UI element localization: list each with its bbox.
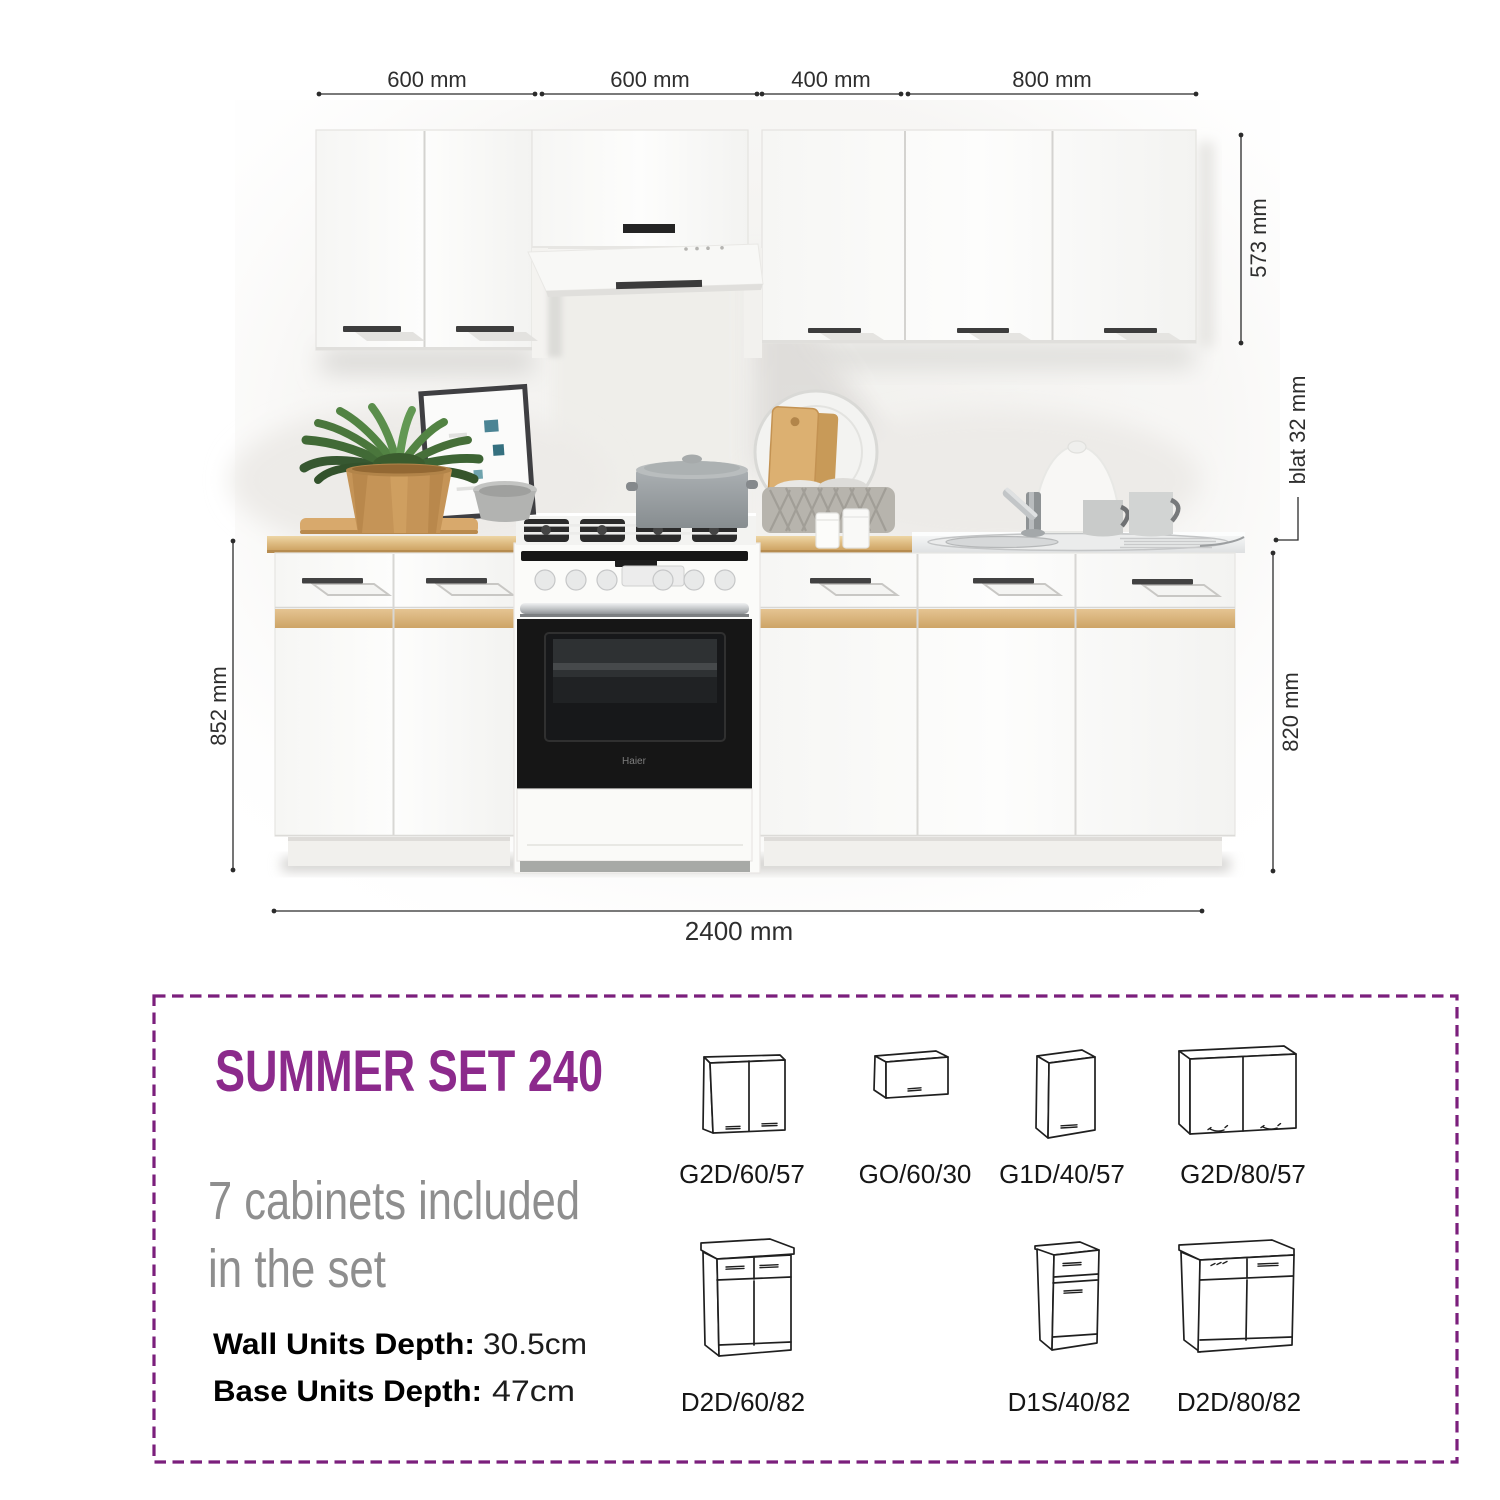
svg-text:2400 mm: 2400 mm xyxy=(685,916,793,946)
svg-text:D2D/80/82: D2D/80/82 xyxy=(1177,1387,1301,1417)
svg-text:7 cabinets included: 7 cabinets included xyxy=(208,1171,580,1231)
svg-text:800 mm: 800 mm xyxy=(1012,67,1091,92)
svg-text:30.5cm: 30.5cm xyxy=(483,1328,587,1361)
svg-text:600 mm: 600 mm xyxy=(610,67,689,92)
svg-text:47cm: 47cm xyxy=(492,1375,575,1408)
svg-text:Base Units Depth:: Base Units Depth: xyxy=(213,1375,482,1408)
svg-text:in the set: in the set xyxy=(208,1239,386,1299)
svg-text:600 mm: 600 mm xyxy=(387,67,466,92)
svg-text:D2D/60/82: D2D/60/82 xyxy=(681,1387,805,1417)
svg-text:820 mm: 820 mm xyxy=(1278,672,1303,751)
svg-text:SUMMER SET 240: SUMMER SET 240 xyxy=(215,1039,603,1104)
svg-text:852 mm: 852 mm xyxy=(206,666,231,745)
svg-text:400 mm: 400 mm xyxy=(791,67,870,92)
svg-text:D1S/40/82: D1S/40/82 xyxy=(1008,1387,1131,1417)
svg-text:Haier: Haier xyxy=(622,756,647,767)
svg-text:blat 32 mm: blat 32 mm xyxy=(1285,376,1310,485)
svg-text:G2D/60/57: G2D/60/57 xyxy=(679,1159,805,1189)
svg-text:G2D/80/57: G2D/80/57 xyxy=(1180,1159,1306,1189)
svg-text:G1D/40/57: G1D/40/57 xyxy=(999,1159,1125,1189)
svg-text:GO/60/30: GO/60/30 xyxy=(859,1159,972,1189)
svg-text:573 mm: 573 mm xyxy=(1246,198,1271,277)
svg-text:Wall Units Depth:: Wall Units Depth: xyxy=(213,1328,475,1361)
